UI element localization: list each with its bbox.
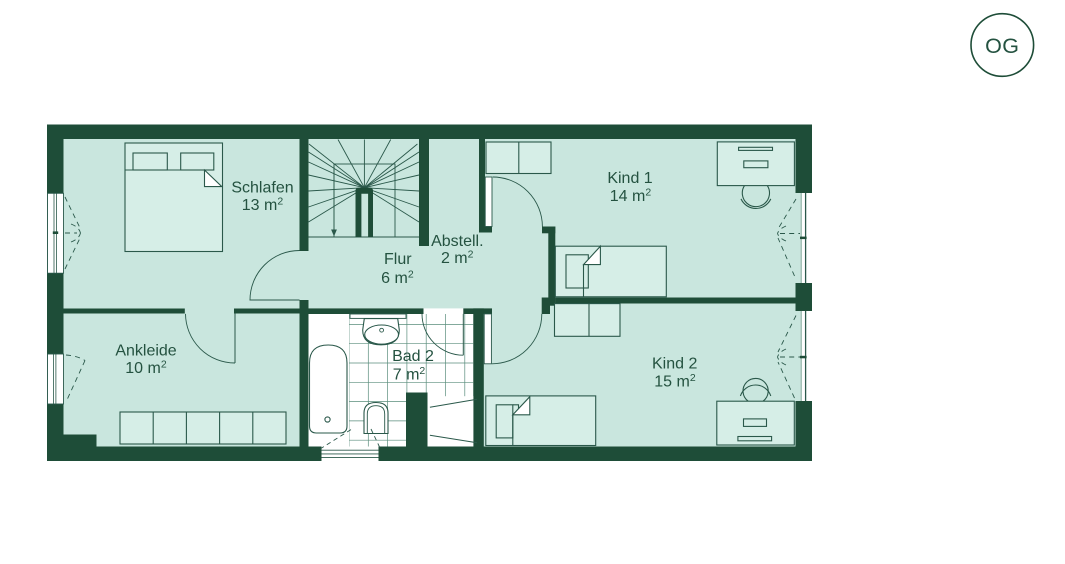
svg-text:OG: OG	[985, 34, 1019, 58]
svg-text:Kind 1: Kind 1	[607, 170, 652, 187]
svg-text:13 m2: 13 m2	[242, 195, 284, 214]
svg-text:Ankleide: Ankleide	[115, 343, 176, 360]
svg-text:Flur: Flur	[384, 251, 412, 268]
svg-text:Bad 2: Bad 2	[392, 348, 434, 365]
svg-text:14 m2: 14 m2	[610, 186, 652, 205]
svg-text:10 m2: 10 m2	[125, 359, 167, 378]
svg-text:Abstell.: Abstell.	[431, 233, 483, 250]
svg-text:15 m2: 15 m2	[654, 372, 696, 391]
svg-text:Schlafen: Schlafen	[231, 179, 293, 196]
svg-text:Kind 2: Kind 2	[652, 355, 697, 372]
